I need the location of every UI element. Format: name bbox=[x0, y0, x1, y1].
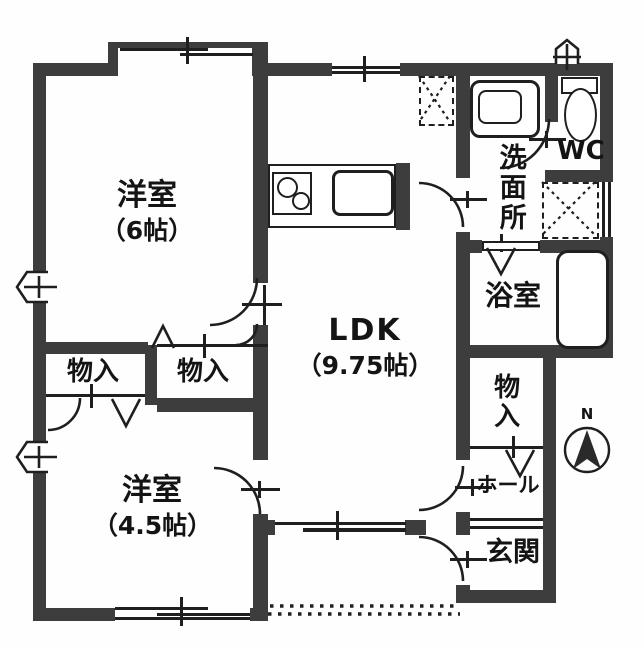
room-label-wc: WC bbox=[557, 137, 601, 166]
folding-door-storage-b bbox=[152, 326, 174, 348]
room-label-washroom: 洗面所 bbox=[495, 137, 525, 239]
door-arc-washroom bbox=[419, 183, 463, 227]
room-size-bedroom6: （6帖） bbox=[82, 217, 212, 245]
room-label-hall: ホール bbox=[470, 474, 546, 497]
door-arc-bedroom6-small bbox=[236, 324, 257, 345]
room-label-bathroom: 浴室 bbox=[474, 281, 552, 312]
room-size-ldk: （9.75帖） bbox=[290, 352, 440, 380]
room-label-bedroom6: 洋室 bbox=[87, 179, 207, 212]
room-label-entrance: 玄関 bbox=[481, 538, 545, 568]
door-arc-bedroom45 bbox=[214, 468, 260, 514]
folding-door-bath bbox=[487, 248, 515, 274]
door-arc-bedroom6 bbox=[210, 278, 257, 325]
door-arc-entrance bbox=[419, 537, 463, 581]
room-label-bedroom45: 洋室 bbox=[92, 474, 212, 507]
door-arc-hall bbox=[419, 466, 463, 510]
room-label-storage-c: 物入 bbox=[490, 360, 519, 444]
room-label-ldk: LDK bbox=[305, 314, 425, 347]
room-size-bedroom45: （4.5帖） bbox=[85, 512, 220, 540]
compass-needle-icon bbox=[573, 430, 601, 469]
room-label-storage-b: 物入 bbox=[158, 358, 248, 387]
compass-north-label: N bbox=[577, 406, 597, 423]
door-arc-storage-a bbox=[48, 398, 80, 430]
folding-door-storage-a bbox=[112, 399, 140, 426]
floorplan: 洋室 （6帖） LDK （9.75帖） 洋室 （4.5帖） 物入 物入 物入 洗… bbox=[0, 0, 644, 650]
room-label-storage-a: 物入 bbox=[49, 358, 137, 387]
